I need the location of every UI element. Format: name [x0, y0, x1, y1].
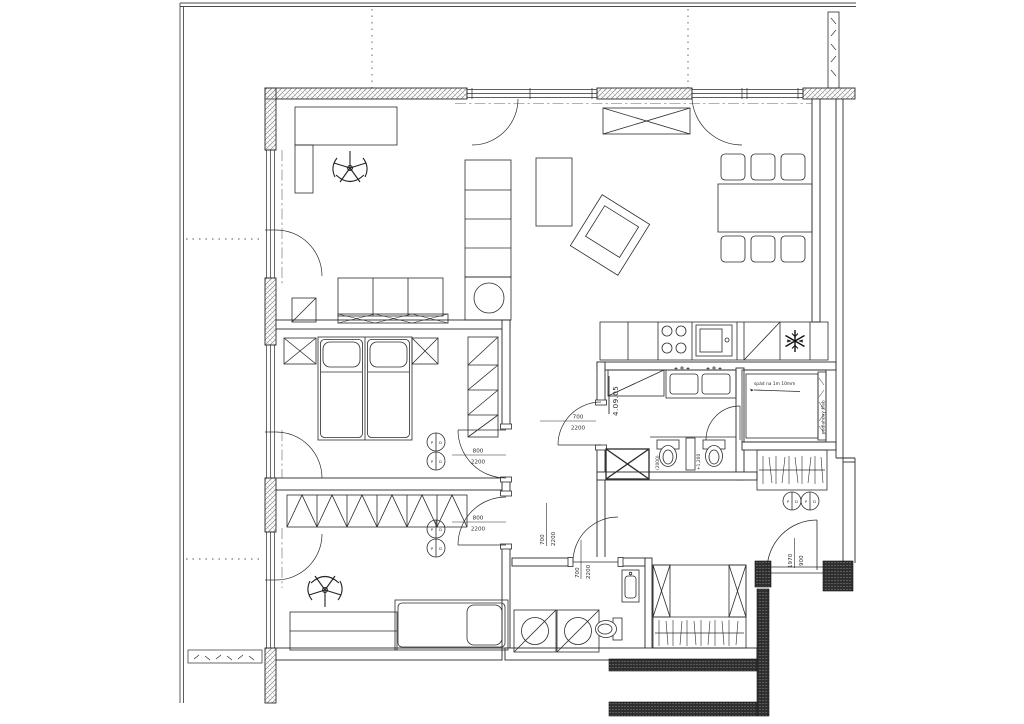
door-label-laundry-height: 2200 — [586, 564, 592, 579]
door-label-bedroom2-width: 800 — [473, 516, 484, 522]
kitchen-sink — [696, 325, 732, 356]
shower — [742, 370, 826, 442]
floor-drain-label: podlahový žľab — [820, 400, 827, 434]
bedroom1-nightstands — [284, 338, 438, 364]
wc-wall-level-label: +1,200 — [696, 454, 702, 470]
office-chair — [333, 151, 367, 182]
svg-text:D: D — [439, 546, 442, 551]
wc-3 — [596, 618, 623, 640]
svg-text:D: D — [813, 499, 816, 504]
interior-walls — [276, 99, 836, 660]
desk2 — [290, 612, 397, 650]
dryer — [557, 610, 599, 652]
door-label-bedroom2-height: 2200 — [471, 527, 486, 533]
svg-text:D: D — [439, 527, 442, 532]
door-label-entrance-width: 900 — [799, 555, 805, 566]
door-label-laundry-width: 700 — [575, 567, 581, 578]
washing-machine — [514, 610, 556, 652]
washbasin — [622, 570, 639, 602]
hall-wardrobe — [653, 565, 746, 648]
single-bed — [395, 600, 508, 650]
door-label-entrance-height: 1970 — [788, 553, 794, 568]
door-label-bathroom-height: 2200 — [571, 426, 586, 432]
svg-text:P: P — [431, 527, 434, 532]
wc-2 — [703, 440, 725, 467]
door-label-hall-height: 2200 — [551, 531, 557, 546]
double-bed — [318, 337, 412, 440]
office-chair-2 — [308, 576, 342, 607]
armchair — [570, 195, 649, 276]
svg-text:P: P — [805, 499, 808, 504]
coat-closet — [757, 450, 827, 490]
equipment-symbol-letters: PD PD PD PD PD PD — [431, 440, 816, 551]
svg-text:P: P — [787, 499, 790, 504]
floor-plan-drawing: PD PD PD PD PD PD 4.09.05 800 2200 800 2… — [0, 0, 1024, 724]
fridge — [744, 322, 780, 360]
door-label-bedroom1-width: 800 — [473, 449, 484, 455]
terrace-glass-panel — [828, 12, 839, 88]
right-wall — [836, 99, 855, 563]
sideboard — [603, 108, 690, 134]
door-label-hall-width: 700 — [540, 534, 546, 545]
door-label-bedroom1-height: 2200 — [471, 460, 486, 466]
unit-number-label: 4.09.05 — [611, 386, 620, 416]
dining-chairs — [721, 154, 805, 262]
floor-plan-svg: PD PD PD PD PD PD 4.09.05 800 2200 800 2… — [0, 0, 1024, 724]
coffee-table — [536, 158, 572, 226]
vanity — [666, 366, 736, 398]
sofa — [292, 160, 511, 323]
desk — [295, 107, 397, 193]
terrace-ramp — [188, 650, 262, 663]
svg-text:P: P — [431, 546, 434, 551]
door-label-bathroom-width: 700 — [573, 415, 584, 421]
hob — [662, 326, 686, 353]
svg-text:D: D — [439, 440, 442, 445]
svg-text:P: P — [431, 440, 434, 445]
freezer-icon — [786, 330, 805, 352]
equipment-symbols — [427, 433, 819, 557]
shower-slope-label: spád na 1m 10mm — [754, 380, 795, 387]
bedroom1-wardrobe — [468, 337, 498, 437]
site-boundary — [180, 3, 856, 703]
dining-table — [718, 184, 812, 232]
bedroom2-wardrobe — [287, 495, 467, 527]
svg-text:P: P — [431, 459, 434, 464]
svg-text:D: D — [439, 459, 442, 464]
svg-text:D: D — [795, 499, 798, 504]
wc-niche-width-label: (2000) — [655, 455, 661, 470]
